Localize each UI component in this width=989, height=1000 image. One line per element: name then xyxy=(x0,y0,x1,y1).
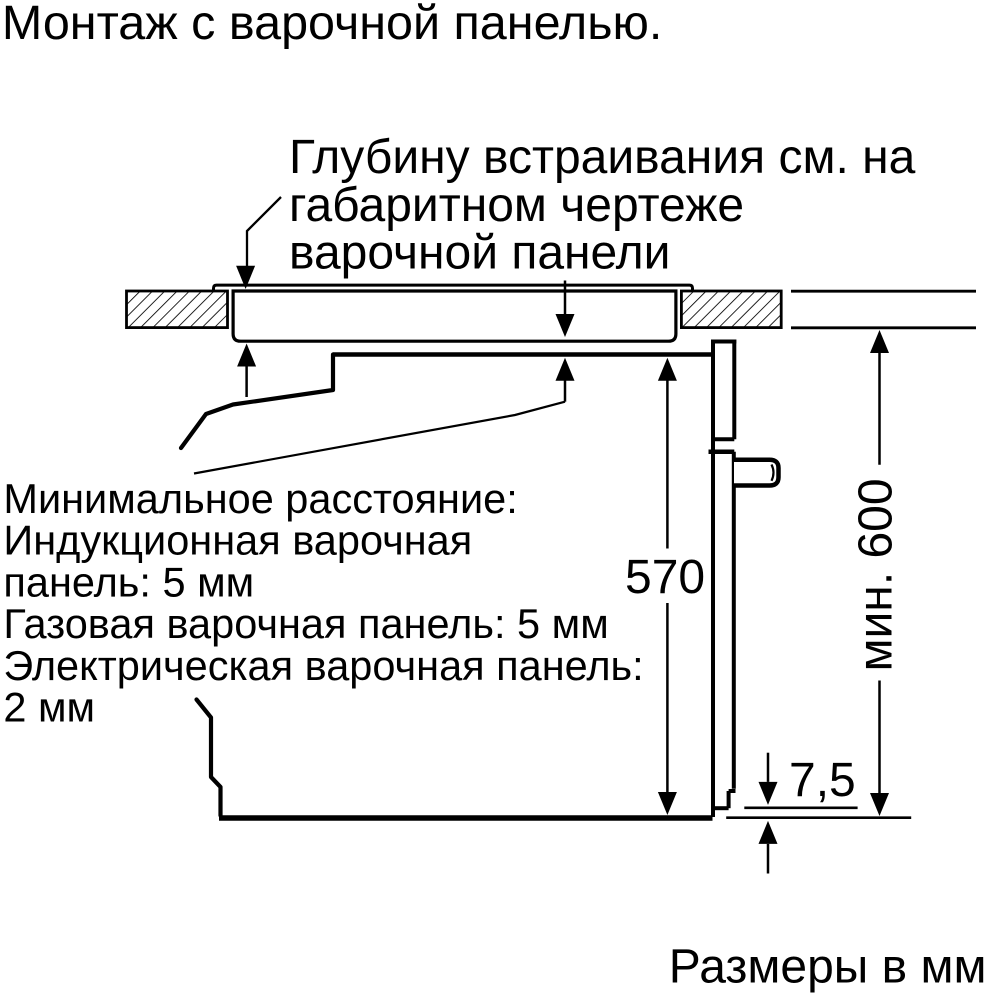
svg-text:Индукционная варочная: Индукционная варочная xyxy=(3,517,472,564)
svg-text:2 мм: 2 мм xyxy=(3,684,95,731)
svg-text:Минимальное расстояние:: Минимальное расстояние: xyxy=(3,475,517,522)
svg-text:Размеры в мм: Размеры в мм xyxy=(669,941,987,994)
svg-text:570: 570 xyxy=(625,551,705,604)
svg-text:габаритном чертеже: габаритном чертеже xyxy=(289,179,744,232)
svg-text:Монтаж с варочной панелью.: Монтаж с варочной панелью. xyxy=(2,0,662,50)
svg-text:Газовая варочная панель: 5 мм: Газовая варочная панель: 5 мм xyxy=(3,600,608,647)
svg-text:7,5: 7,5 xyxy=(789,754,856,807)
svg-text:Электрическая варочная панель:: Электрическая варочная панель: xyxy=(3,642,643,689)
svg-text:панель: 5 мм: панель: 5 мм xyxy=(3,558,254,605)
svg-text:варочной панели: варочной панели xyxy=(289,227,670,280)
svg-text:Глубину встраивания см. на: Глубину встраивания см. на xyxy=(289,131,916,184)
svg-text:мин. 600: мин. 600 xyxy=(850,478,903,671)
